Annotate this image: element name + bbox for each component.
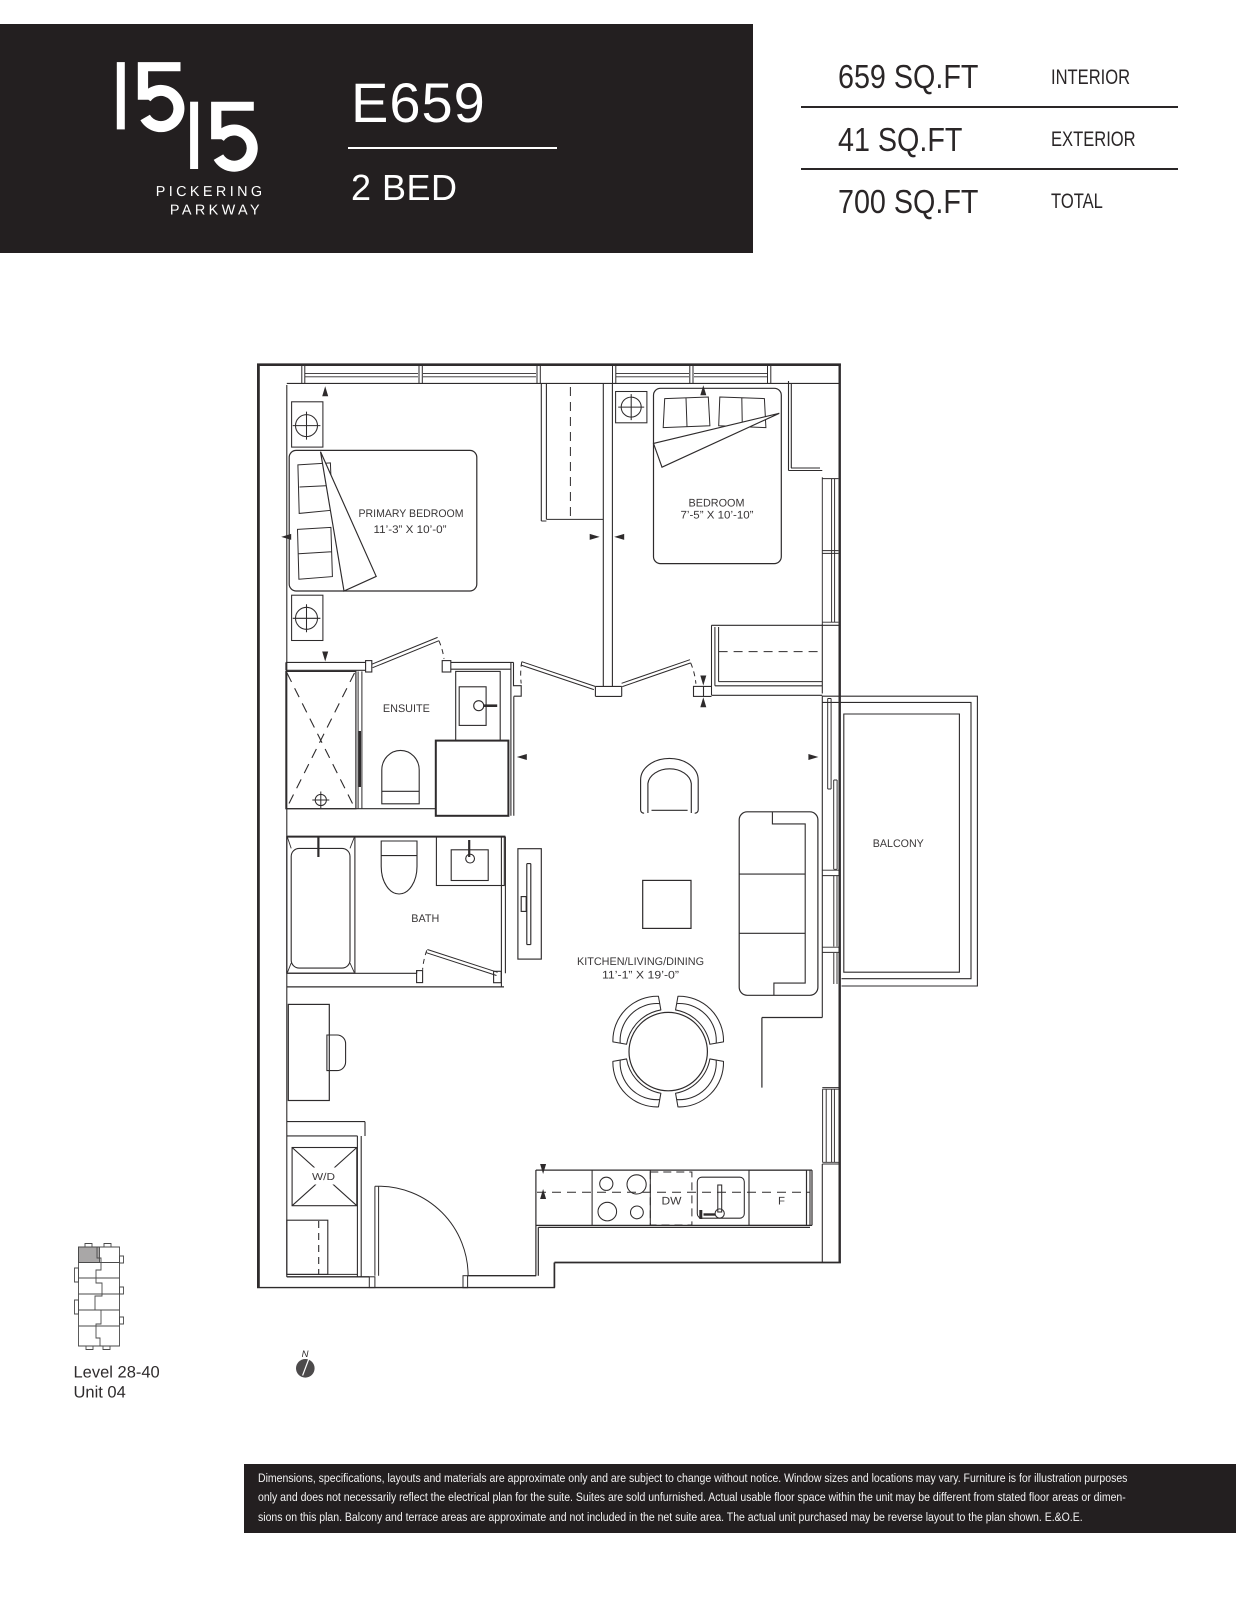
svg-text:Level 28-40: Level 28-40 (74, 1364, 160, 1382)
svg-text:PRIMARY BEDROOM: PRIMARY BEDROOM (359, 508, 464, 520)
svg-text:KITCHEN/LIVING/DINING: KITCHEN/LIVING/DINING (577, 956, 704, 968)
svg-text:BATH: BATH (411, 913, 439, 925)
svg-text:Unit 04: Unit 04 (74, 1384, 126, 1402)
svg-text:F: F (778, 1196, 785, 1208)
svg-text:W/D: W/D (312, 1172, 335, 1183)
svg-text:7’-5” X 10’-10”: 7’-5” X 10’-10” (681, 510, 754, 522)
svg-text:11’-1” X 19’-0”: 11’-1” X 19’-0” (602, 970, 679, 982)
svg-text:N: N (302, 1349, 309, 1360)
svg-text:BALCONY: BALCONY (873, 838, 925, 850)
svg-text:ENSUITE: ENSUITE (383, 703, 430, 715)
svg-text:11’-3” X 10’-0”: 11’-3” X 10’-0” (374, 524, 447, 536)
svg-text:BEDROOM: BEDROOM (689, 498, 745, 510)
svg-text:DW: DW (662, 1196, 683, 1208)
